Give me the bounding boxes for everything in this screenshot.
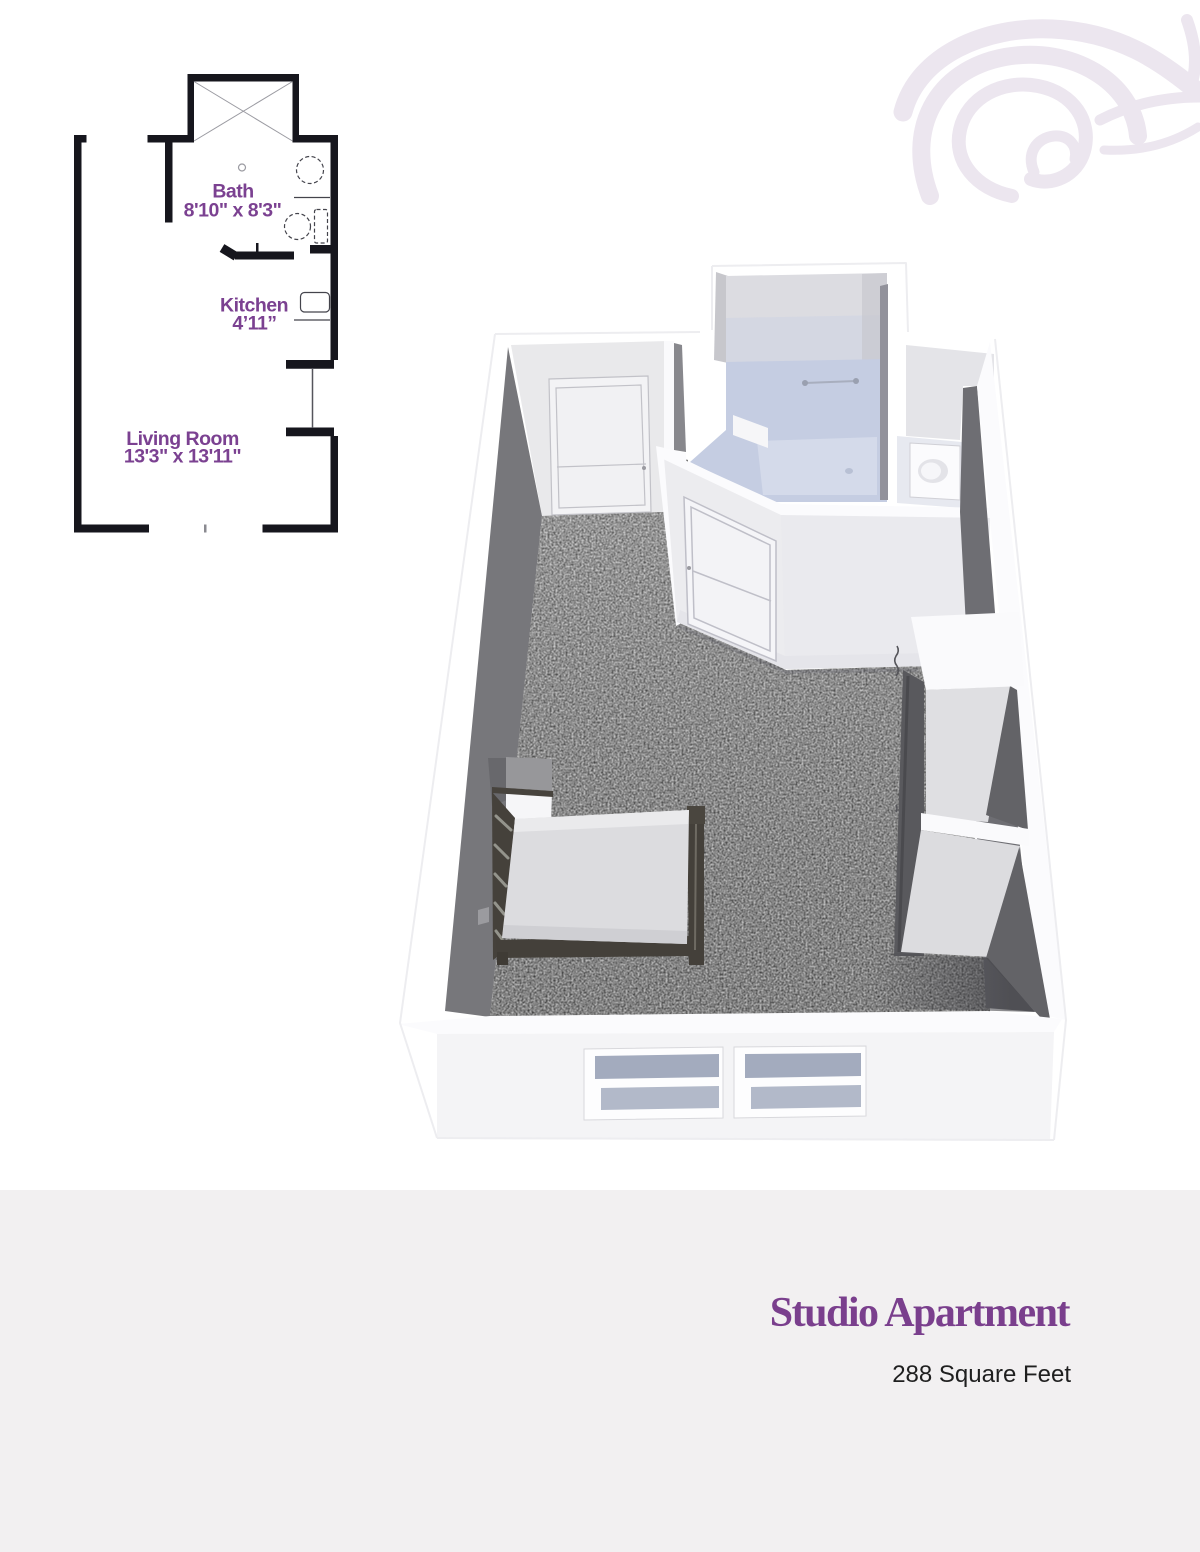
- svg-text:8'10" x 8'3": 8'10" x 8'3": [184, 200, 282, 222]
- svg-text:13'3" x 13'11": 13'3" x 13'11": [124, 446, 241, 468]
- svg-text:4’11”: 4’11”: [232, 313, 276, 335]
